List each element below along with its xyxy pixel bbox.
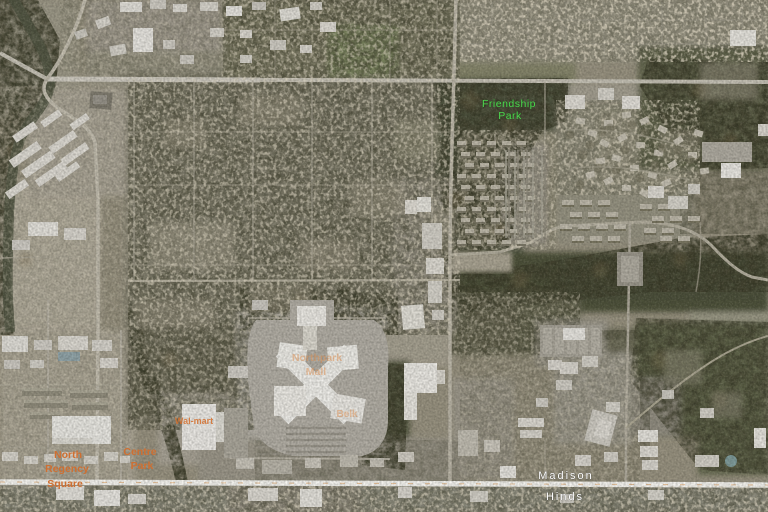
- svg-text:North: North: [54, 449, 82, 461]
- svg-text:Friendship: Friendship: [482, 98, 536, 110]
- svg-text:Wal-mart: Wal-mart: [175, 416, 213, 426]
- svg-text:Square: Square: [47, 478, 83, 490]
- svg-text:Park: Park: [498, 110, 522, 122]
- svg-text:Northpark: Northpark: [292, 352, 342, 364]
- svg-text:Centre: Centre: [123, 446, 156, 458]
- svg-text:Mall: Mall: [306, 366, 327, 378]
- svg-text:Regency: Regency: [45, 463, 89, 475]
- svg-text:Park: Park: [131, 460, 154, 472]
- svg-text:Madison: Madison: [538, 470, 594, 482]
- svg-text:Belk: Belk: [336, 409, 358, 420]
- svg-text:Hinds: Hinds: [546, 491, 584, 503]
